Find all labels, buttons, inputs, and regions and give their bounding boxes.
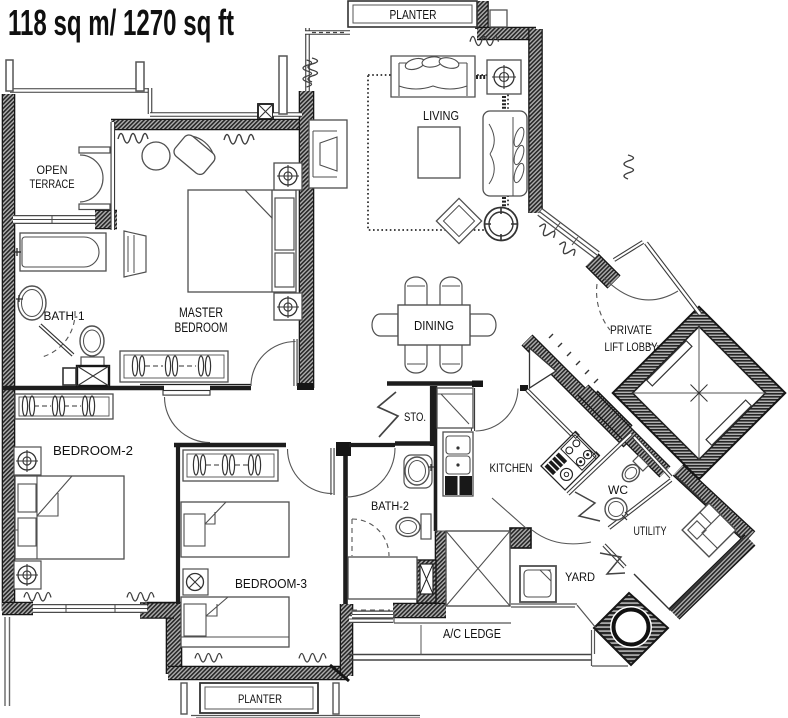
svg-text:WC: WC bbox=[608, 485, 628, 497]
svg-text:YARD: YARD bbox=[565, 572, 595, 584]
svg-text:BEDROOM-2: BEDROOM-2 bbox=[53, 443, 133, 458]
svg-text:OPEN: OPEN bbox=[37, 163, 68, 177]
svg-text:PLANTER: PLANTER bbox=[238, 692, 282, 706]
svg-text:BEDROOM: BEDROOM bbox=[175, 320, 228, 335]
svg-text:UTILITY: UTILITY bbox=[634, 526, 667, 538]
svg-text:BATH-1: BATH-1 bbox=[44, 311, 85, 323]
svg-text:BEDROOM-3: BEDROOM-3 bbox=[235, 576, 307, 591]
svg-text:BATH-2: BATH-2 bbox=[371, 501, 409, 513]
svg-text:118 sq m/ 1270 sq ft: 118 sq m/ 1270 sq ft bbox=[8, 2, 234, 43]
svg-text:A/C LEDGE: A/C LEDGE bbox=[443, 627, 501, 641]
svg-text:MASTER: MASTER bbox=[179, 305, 223, 320]
svg-text:LIVING: LIVING bbox=[423, 108, 459, 123]
svg-text:STO.: STO. bbox=[404, 412, 426, 424]
svg-text:KITCHEN: KITCHEN bbox=[490, 461, 533, 475]
svg-text:LIFT LOBBY: LIFT LOBBY bbox=[605, 340, 658, 354]
svg-text:TERRACE: TERRACE bbox=[30, 177, 75, 191]
svg-text:PRIVATE: PRIVATE bbox=[610, 323, 652, 337]
svg-text:DINING: DINING bbox=[414, 318, 454, 333]
svg-text:PLANTER: PLANTER bbox=[390, 8, 437, 22]
